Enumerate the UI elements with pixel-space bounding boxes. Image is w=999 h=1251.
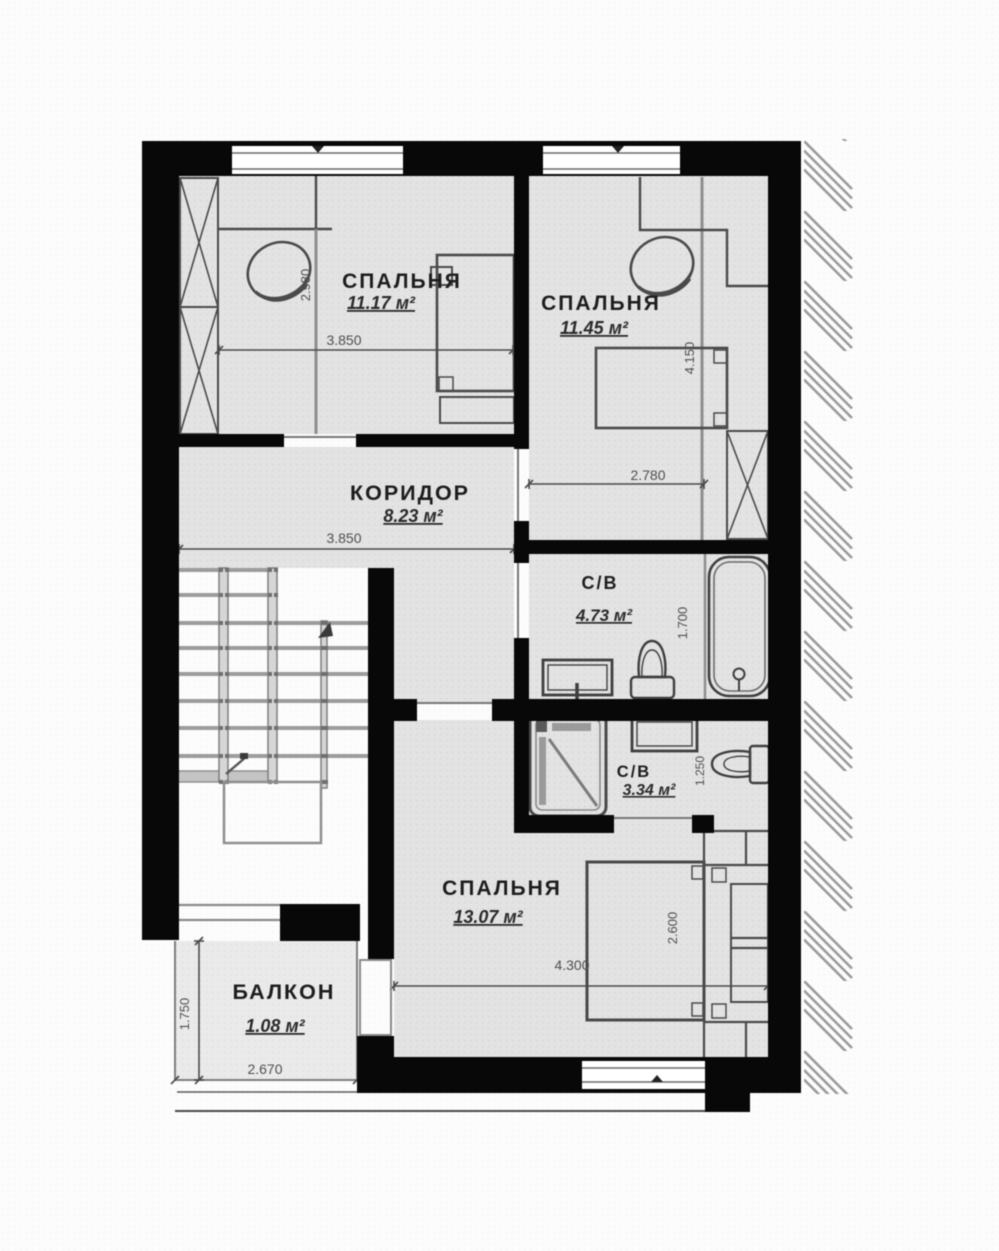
svg-text:3.34 м²: 3.34 м² bbox=[623, 782, 676, 799]
svg-text:2.980: 2.980 bbox=[298, 269, 313, 302]
svg-text:4.150: 4.150 bbox=[682, 342, 697, 375]
svg-text:3.850: 3.850 bbox=[326, 530, 361, 546]
svg-text:4.300: 4.300 bbox=[554, 957, 589, 973]
svg-text:4.73 м²: 4.73 м² bbox=[575, 606, 633, 625]
svg-text:3.850: 3.850 bbox=[326, 332, 361, 348]
svg-text:С/В: С/В bbox=[582, 573, 619, 593]
svg-text:2.600: 2.600 bbox=[665, 912, 680, 945]
svg-text:1.08 м²: 1.08 м² bbox=[245, 1016, 305, 1036]
svg-text:КОРИДОР: КОРИДОР bbox=[350, 481, 470, 505]
svg-text:СПАЛЬНЯ: СПАЛЬНЯ bbox=[541, 292, 661, 315]
svg-text:С/В: С/В bbox=[617, 763, 651, 781]
svg-text:8.23 м²: 8.23 м² bbox=[383, 506, 443, 526]
svg-text:2.670: 2.670 bbox=[247, 1061, 282, 1077]
svg-text:13.07 м²: 13.07 м² bbox=[453, 907, 523, 927]
svg-text:БАЛКОН: БАЛКОН bbox=[233, 980, 336, 1004]
svg-text:СПАЛЬНЯ: СПАЛЬНЯ bbox=[342, 270, 462, 293]
svg-text:СПАЛЬНЯ: СПАЛЬНЯ bbox=[442, 877, 562, 900]
svg-text:1.250: 1.250 bbox=[693, 756, 707, 786]
svg-text:2.780: 2.780 bbox=[630, 467, 665, 483]
svg-text:1.750: 1.750 bbox=[177, 998, 192, 1031]
svg-text:11.45 м²: 11.45 м² bbox=[560, 318, 629, 338]
svg-text:1.700: 1.700 bbox=[675, 607, 690, 640]
svg-text:11.17 м²: 11.17 м² bbox=[347, 293, 416, 313]
